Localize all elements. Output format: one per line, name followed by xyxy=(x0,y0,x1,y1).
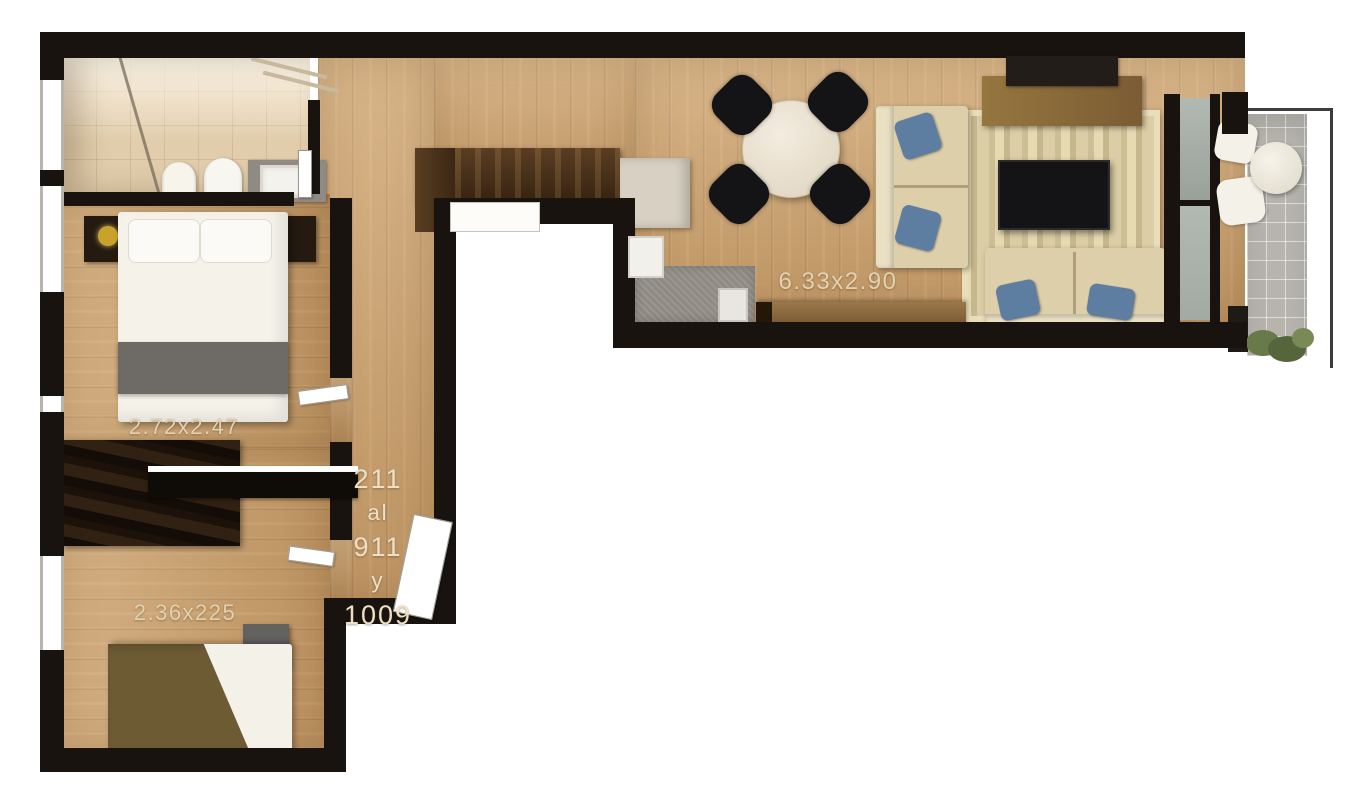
balcony-door-glass xyxy=(1180,98,1210,200)
balcony-outline xyxy=(1330,108,1333,368)
unit-numbers: 211 al 911 y 1009 xyxy=(318,462,438,634)
kitchen-base-cabinet xyxy=(628,236,664,278)
bathroom-door xyxy=(298,150,312,198)
balcony-door-glass xyxy=(1180,206,1210,320)
unit-numbers-line: 1009 xyxy=(318,598,438,632)
bedroom1-dimensions: 2.72x2.47 xyxy=(84,414,284,442)
bed-pillow xyxy=(200,219,272,263)
floor-plan: 2.72x2.47 2.36x225 6.33x2.90 211 al 911 … xyxy=(0,0,1365,810)
unit-numbers-line: y xyxy=(318,564,438,598)
console-tray xyxy=(1006,56,1118,86)
unit-numbers-line: 911 xyxy=(318,530,438,564)
balcony-table xyxy=(1250,142,1302,194)
plant xyxy=(1292,328,1314,348)
unit-numbers-line: 211 xyxy=(318,462,438,496)
wall-top xyxy=(40,32,1245,58)
table-lamp xyxy=(98,226,118,246)
living-dimensions: 6.33x2.90 xyxy=(738,268,938,296)
balcony-door-frame xyxy=(1164,94,1180,324)
window xyxy=(40,556,64,650)
window xyxy=(40,396,64,412)
window xyxy=(40,186,64,292)
bedroom2-dimensions: 2.36x225 xyxy=(85,600,285,628)
unit-numbers-line: al xyxy=(318,496,438,530)
wall-bedroom1-hall xyxy=(330,198,352,378)
balcony-outline xyxy=(1247,108,1333,111)
counter-front-panel xyxy=(450,202,540,232)
sofa-backrest xyxy=(876,106,894,268)
television xyxy=(998,160,1110,230)
wall-living-bottom xyxy=(613,322,1247,348)
bed-runner-blanket xyxy=(118,342,288,394)
sofa-cushion-divider xyxy=(1073,252,1076,314)
bed-pillow xyxy=(128,219,200,263)
wall-balcony-stub xyxy=(1222,92,1248,134)
sofa-cushion-divider xyxy=(894,185,968,188)
wall-bottom-left xyxy=(40,748,346,772)
window xyxy=(40,80,64,170)
wall-bathroom-bottom xyxy=(62,192,294,206)
